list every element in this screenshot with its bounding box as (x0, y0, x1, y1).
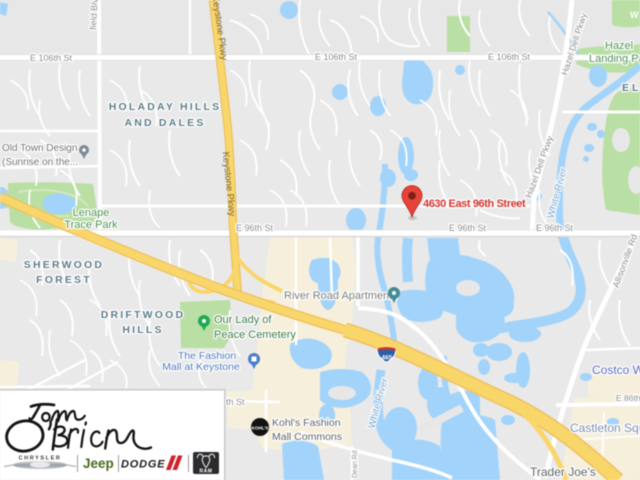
svg-text:DODGE: DODGE (121, 459, 165, 471)
svg-text:Jeep: Jeep (83, 456, 114, 471)
svg-text:E 96th St: E 96th St (236, 223, 274, 233)
svg-text:Trader Joe's: Trader Joe's (530, 465, 596, 479)
svg-text:E 86th St: E 86th St (616, 393, 640, 403)
svg-text:Old Town Design: Old Town Design (2, 143, 77, 154)
svg-text:Costco Wh: Costco Wh (592, 363, 640, 377)
svg-text:W: W (630, 10, 639, 20)
svg-text:RAM: RAM (200, 469, 213, 475)
svg-text:SHERWOOD: SHERWOOD (24, 259, 104, 271)
svg-text:E 106th St: E 106th St (315, 52, 358, 62)
svg-text:Lenape: Lenape (73, 207, 110, 219)
svg-text:DRIFTWOOD: DRIFTWOOD (101, 309, 186, 321)
svg-text:Castleton Square: Castleton Square (570, 421, 640, 435)
svg-text:E 96th St: E 96th St (536, 223, 574, 233)
svg-text:HOLADAY HILLS: HOLADAY HILLS (109, 101, 222, 113)
svg-text:Mall Commons: Mall Commons (272, 431, 342, 443)
svg-text:Mall at Keystone: Mall at Keystone (162, 361, 240, 373)
svg-text:Our Lady of: Our Lady of (214, 314, 272, 326)
svg-text:Dean Rd: Dean Rd (352, 450, 359, 478)
svg-text:HILLS: HILLS (122, 324, 163, 336)
svg-text:Hazel: Hazel (605, 40, 633, 52)
svg-text:Kohl's Fashion: Kohl's Fashion (272, 417, 341, 429)
svg-text:River Road Apartments: River Road Apartments (284, 290, 398, 302)
svg-text:Peace Cemetery: Peace Cemetery (214, 329, 296, 341)
svg-text:AND DALES: AND DALES (124, 117, 205, 129)
svg-text:field Blvd: field Blvd (88, 0, 100, 30)
svg-text:th St: th St (226, 397, 245, 407)
svg-text:Trace Park: Trace Park (64, 219, 118, 231)
svg-text:E 96th St: E 96th St (449, 223, 487, 233)
svg-text:KOHL'S: KOHL'S (252, 426, 269, 431)
svg-text:CHRYSLER: CHRYSLER (19, 456, 62, 462)
svg-text:E 106th St: E 106th St (488, 52, 531, 62)
svg-text:4630 East 96th Street: 4630 East 96th Street (423, 198, 526, 210)
svg-text:FOREST: FOREST (36, 274, 92, 286)
svg-text:(Sunrise on the...: (Sunrise on the... (2, 157, 78, 168)
svg-text:Landing Park: Landing Park (589, 53, 640, 65)
svg-text:465: 465 (381, 355, 392, 362)
svg-text:E 106th St: E 106th St (30, 53, 73, 63)
svg-text:ELLER: ELLER (622, 82, 640, 94)
